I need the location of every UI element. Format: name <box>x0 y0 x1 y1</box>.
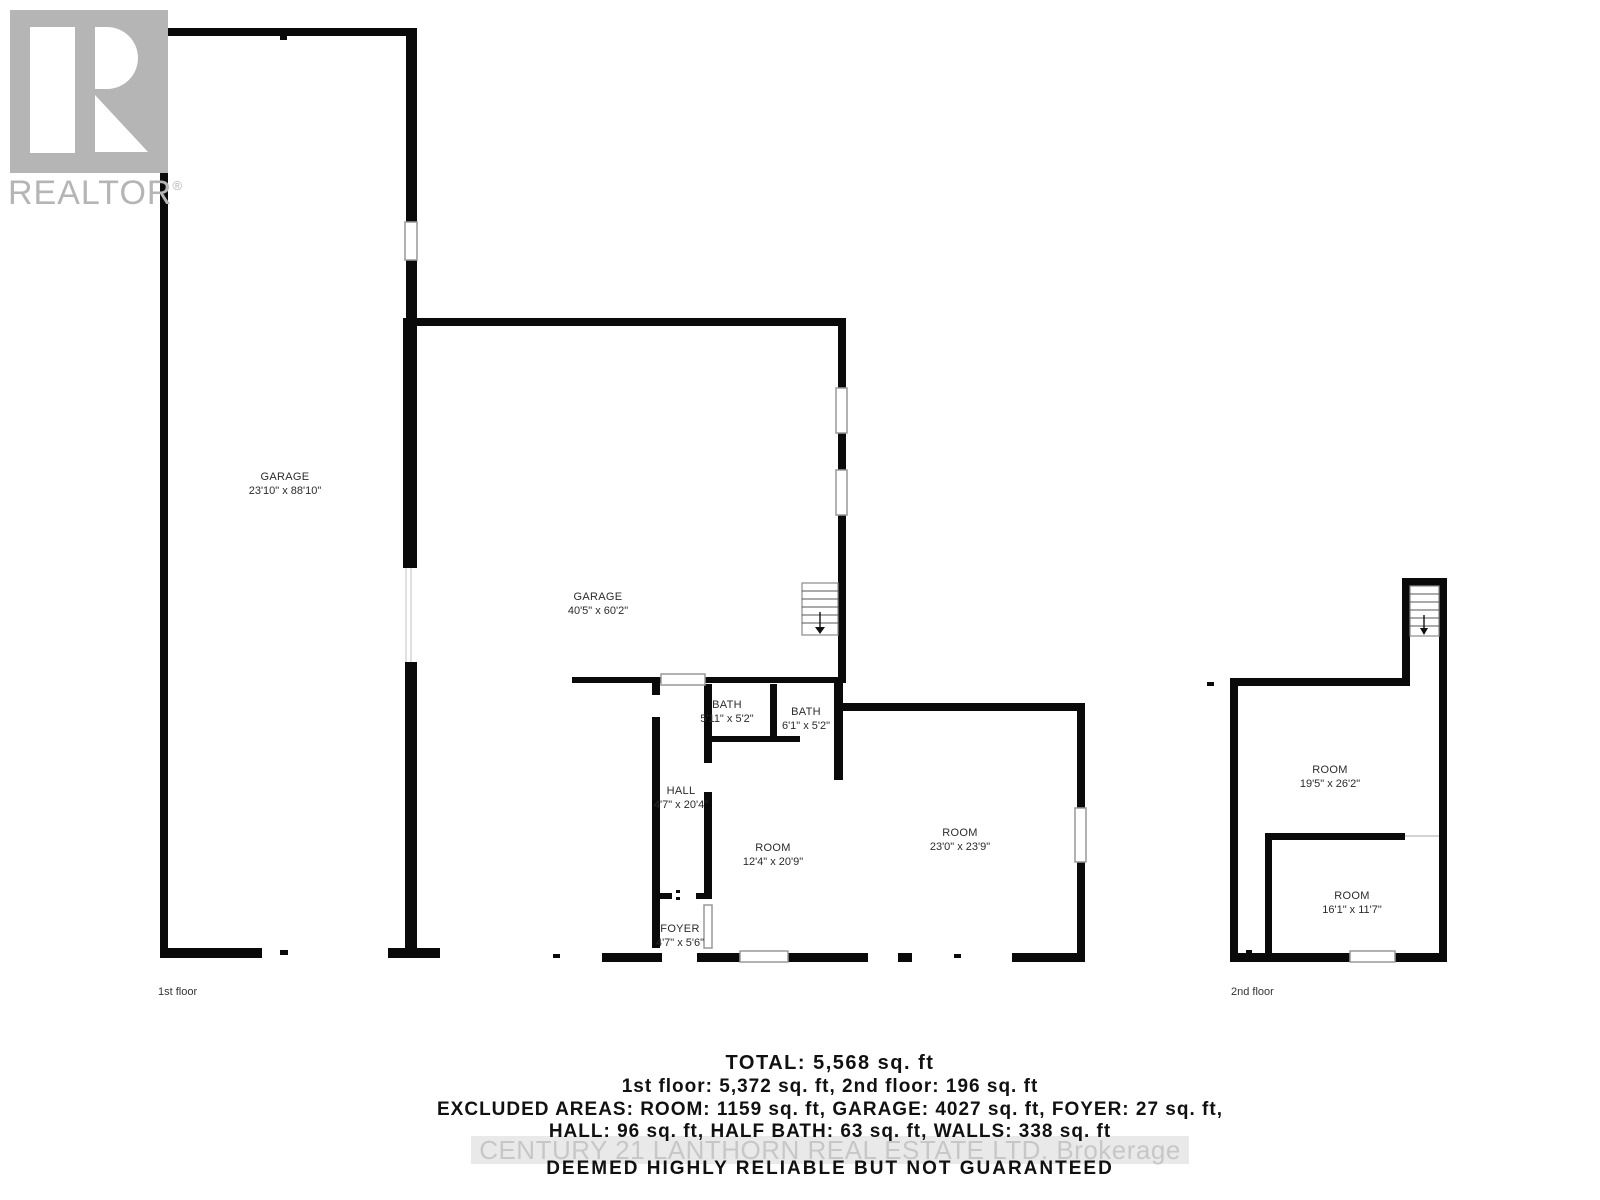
room-label-room-2: ROOM 23'0" x 23'9" <box>930 826 990 854</box>
room-name: BATH <box>782 705 830 719</box>
room-label-2f-room-2: ROOM 16'1" x 11'7" <box>1322 889 1382 917</box>
room-name: GARAGE <box>249 470 322 484</box>
room-dims: 40'5" x 60'2" <box>568 604 628 618</box>
room-dims: 23'10" x 88'10" <box>249 484 322 498</box>
room-name: HALL <box>654 784 708 798</box>
second-floor-stairs-icon <box>1410 586 1439 636</box>
room-dims: 6'1" x 5'2" <box>782 719 830 733</box>
room-dims: 16'1" x 11'7" <box>1322 903 1382 917</box>
room-dims: 4'7" x 5'6" <box>656 936 704 950</box>
room-name: ROOM <box>1300 763 1360 777</box>
room-dims: 19'5" x 26'2" <box>1300 777 1360 791</box>
room-dims: 4'7" x 20'4" <box>654 798 708 812</box>
realtor-logo-text: REALTOR® <box>8 174 183 213</box>
room-name: BATH <box>700 698 753 712</box>
summary-excluded-line1: EXCLUDED AREAS: ROOM: 1159 sq. ft, GARAG… <box>30 1099 1600 1121</box>
first-floor-open-wall-lines <box>406 568 411 662</box>
room-label-foyer: FOYER 4'7" x 5'6" <box>656 922 704 950</box>
room-name: ROOM <box>930 826 990 840</box>
summary-total: TOTAL: 5,568 sq. ft <box>30 1052 1600 1075</box>
second-floor-caption: 2nd floor <box>1231 986 1274 998</box>
second-floor-windows <box>1350 951 1395 962</box>
room-label-room-1: ROOM 12'4" x 20'9" <box>743 841 803 869</box>
room-label-garage-2: GARAGE 40'5" x 60'2" <box>568 590 628 618</box>
room-dims: 12'4" x 20'9" <box>743 855 803 869</box>
floorplan-drawing <box>0 0 1600 1200</box>
summary-excluded-line2: HALL: 96 sq. ft, HALF BATH: 63 sq. ft, W… <box>30 1121 1600 1143</box>
registered-trademark-icon: ® <box>172 178 183 193</box>
floorplan-page: REALTOR® GARAGE 23'10" x 88'10" GARAGE 4… <box>0 0 1600 1200</box>
summary-disclaimer: DEEMED HIGHLY RELIABLE BUT NOT GUARANTEE… <box>30 1158 1600 1180</box>
room-label-bath-2: BATH 6'1" x 5'2" <box>782 705 830 733</box>
room-name: ROOM <box>743 841 803 855</box>
room-label-2f-room-1: ROOM 19'5" x 26'2" <box>1300 763 1360 791</box>
summary-floor-totals: 1st floor: 5,372 sq. ft, 2nd floor: 196 … <box>30 1076 1600 1098</box>
room-name: GARAGE <box>568 590 628 604</box>
room-label-hall: HALL 4'7" x 20'4" <box>654 784 708 812</box>
room-name: FOYER <box>656 922 704 936</box>
room-label-bath-1: BATH 5'11" x 5'2" <box>700 698 753 726</box>
room-label-garage-1: GARAGE 23'10" x 88'10" <box>249 470 322 498</box>
first-floor-stairs-icon <box>802 583 838 635</box>
first-floor-caption: 1st floor <box>158 986 197 998</box>
room-name: ROOM <box>1322 889 1382 903</box>
room-dims: 5'11" x 5'2" <box>700 712 753 726</box>
room-dims: 23'0" x 23'9" <box>930 840 990 854</box>
